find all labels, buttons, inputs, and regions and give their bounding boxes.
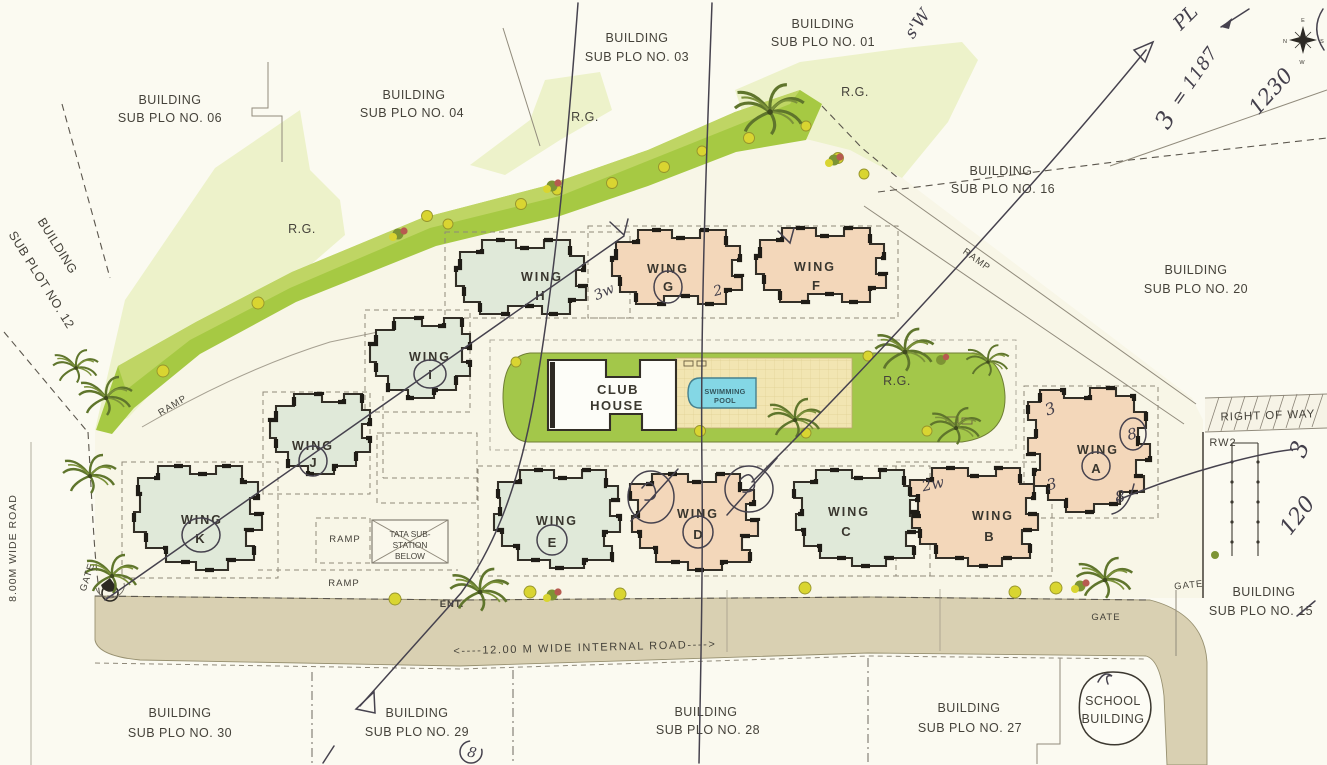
svg-text:BUILDING: BUILDING: [969, 164, 1032, 178]
arrowhead-top: [1221, 18, 1232, 29]
plot-label-28: BUILDINGSUB PLO NO. 28: [656, 705, 760, 737]
rw2-label: RW2: [1209, 437, 1236, 449]
svg-text:BUILDING: BUILDING: [138, 93, 201, 107]
school-building-label: SCHOOL: [1085, 694, 1141, 708]
svg-text:WING: WING: [972, 509, 1014, 523]
rw2-survey-lines: [1230, 443, 1259, 556]
svg-text:I: I: [428, 367, 432, 382]
svg-text:SUB PLO NO. 03: SUB PLO NO. 03: [585, 50, 689, 64]
plot-label-30: BUILDINGSUB PLO NO. 30: [128, 706, 232, 740]
compass-rose: N E W S: [1283, 18, 1324, 66]
plot-label-20: BUILDINGSUB PLO NO. 20: [1144, 263, 1248, 296]
svg-text:C: C: [841, 524, 851, 539]
compass-n: N: [1283, 39, 1287, 45]
svg-text:WING: WING: [1077, 443, 1119, 457]
svg-text:WING: WING: [647, 262, 689, 276]
svg-text:SUB PLO NO. 20: SUB PLO NO. 20: [1144, 282, 1248, 296]
arrowhead-southwest: [356, 692, 375, 713]
hw-sw: s'W: [901, 5, 936, 43]
svg-text:STATION: STATION: [393, 540, 428, 550]
svg-text:WING: WING: [521, 270, 563, 284]
svg-text:E: E: [548, 535, 557, 550]
road-8m-label: 8.00M WIDE ROAD: [7, 494, 19, 602]
ramp-label-mid1: RAMP: [329, 534, 360, 545]
svg-text:BUILDING: BUILDING: [791, 17, 854, 31]
plot-label-12: BUILDING SUB PLOT NO. 12: [6, 215, 80, 331]
svg-text:BUILDING: BUILDING: [1081, 712, 1144, 726]
svg-text:A: A: [1091, 461, 1101, 476]
svg-text:J: J: [309, 455, 316, 470]
svg-text:POOL: POOL: [714, 396, 736, 405]
svg-text:SUB PLO NO. 29: SUB PLO NO. 29: [365, 725, 469, 739]
plot-label-15: BUILDINGSUB PLO NO. 15: [1209, 585, 1313, 618]
svg-text:BUILDING: BUILDING: [385, 706, 448, 720]
hw-3-top: 3: [1149, 106, 1181, 133]
svg-text:SUB PLO NO. 06: SUB PLO NO. 06: [118, 111, 222, 125]
plot-label-27: BUILDINGSUB PLO NO. 27: [918, 701, 1022, 735]
plot-label-04: BUILDINGSUB PLO NO. 04: [360, 88, 464, 120]
rg-label-top: R.G.: [571, 110, 599, 124]
rg-label-west: R.G.: [288, 222, 316, 236]
svg-text:BUILDING: BUILDING: [674, 705, 737, 719]
hw-120: 120: [1275, 492, 1321, 540]
internal-road-12m: [95, 596, 1207, 765]
plot-label-03: BUILDINGSUB PLO NO. 03: [585, 31, 689, 64]
svg-text:BUILDING: BUILDING: [382, 88, 445, 102]
svg-text:BUILDING: BUILDING: [605, 31, 668, 45]
svg-text:BUILDING: BUILDING: [1164, 263, 1227, 277]
site-plan-drawing: BUILDINGSUB PLO NO. 06 BUILDINGSUB PLO N…: [0, 0, 1327, 765]
svg-text:SUB PLO NO. 04: SUB PLO NO. 04: [360, 106, 464, 120]
hw-1230: 1230: [1244, 63, 1298, 119]
plot-label-16: BUILDINGSUB PLO NO. 16: [951, 164, 1055, 196]
gate-label-south: GATE: [1091, 612, 1120, 623]
svg-text:WING: WING: [828, 505, 870, 519]
plot-label-06: BUILDINGSUB PLO NO. 06: [118, 93, 222, 125]
svg-text:F: F: [812, 278, 820, 293]
club-house-label: CLUB: [597, 382, 639, 397]
svg-text:SUB PLO NO. 28: SUB PLO NO. 28: [656, 723, 760, 737]
rg-label-northeast: R.G.: [841, 85, 869, 99]
svg-text:BUILDING: BUILDING: [937, 701, 1000, 715]
svg-text:SUB PLO NO. 16: SUB PLO NO. 16: [951, 182, 1055, 196]
svg-text:SUB PLO NO. 30: SUB PLO NO. 30: [128, 726, 232, 740]
svg-text:WING: WING: [677, 507, 719, 521]
svg-text:HOUSE: HOUSE: [590, 398, 644, 413]
swimming-pool-label: SWIMMING: [704, 387, 745, 396]
svg-text:BUILDING: BUILDING: [1232, 585, 1295, 599]
hw-3-right: 3: [1284, 437, 1316, 461]
svg-text:WING: WING: [794, 260, 836, 274]
svg-text:BELOW: BELOW: [395, 551, 425, 561]
entrance-label: ENT.: [440, 599, 465, 610]
plot-label-01: BUILDINGSUB PLO NO. 01: [771, 17, 875, 49]
svg-text:SUB PLO NO. 01: SUB PLO NO. 01: [771, 35, 875, 49]
svg-text:D: D: [693, 527, 702, 542]
svg-text:G: G: [663, 279, 673, 294]
compass-e: E: [1301, 18, 1305, 24]
hw-1187: = 1187: [1167, 43, 1223, 110]
svg-text:BUILDING: BUILDING: [148, 706, 211, 720]
ramp-label-mid2: RAMP: [328, 578, 359, 589]
hw-pl: PL: [1168, 1, 1202, 35]
rg-label-lawn: R.G.: [883, 374, 911, 388]
svg-text:SUB PLO NO. 27: SUB PLO NO. 27: [918, 721, 1022, 735]
school-building: [1079, 672, 1151, 745]
svg-text:B: B: [984, 529, 993, 544]
site-plan-sheet: BUILDINGSUB PLO NO. 06 BUILDINGSUB PLO N…: [0, 0, 1327, 765]
compass-w: W: [1299, 60, 1305, 66]
tata-substation-label: TATA SUB-: [389, 529, 430, 539]
plot-label-29: BUILDINGSUB PLO NO. 29: [365, 706, 469, 739]
svg-text:SUB PLOT NO. 12: SUB PLOT NO. 12: [6, 229, 77, 332]
hw-x29: 8: [466, 744, 478, 762]
